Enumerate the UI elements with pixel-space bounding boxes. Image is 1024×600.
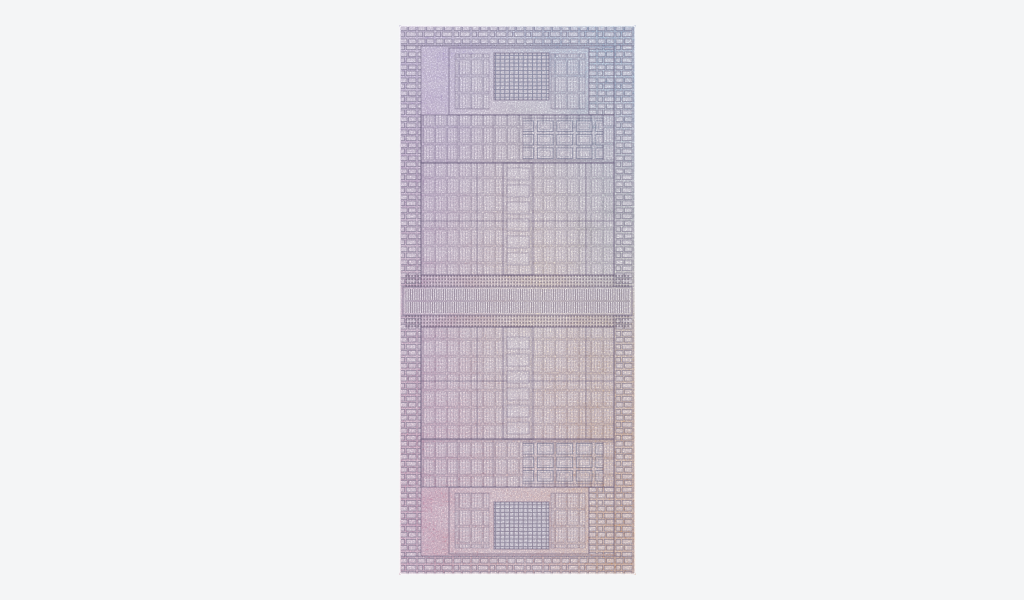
chip-die-photo bbox=[399, 25, 636, 575]
photo-canvas bbox=[0, 0, 1024, 600]
die-shot-image bbox=[399, 25, 636, 575]
film-grain-overlay bbox=[399, 25, 636, 575]
